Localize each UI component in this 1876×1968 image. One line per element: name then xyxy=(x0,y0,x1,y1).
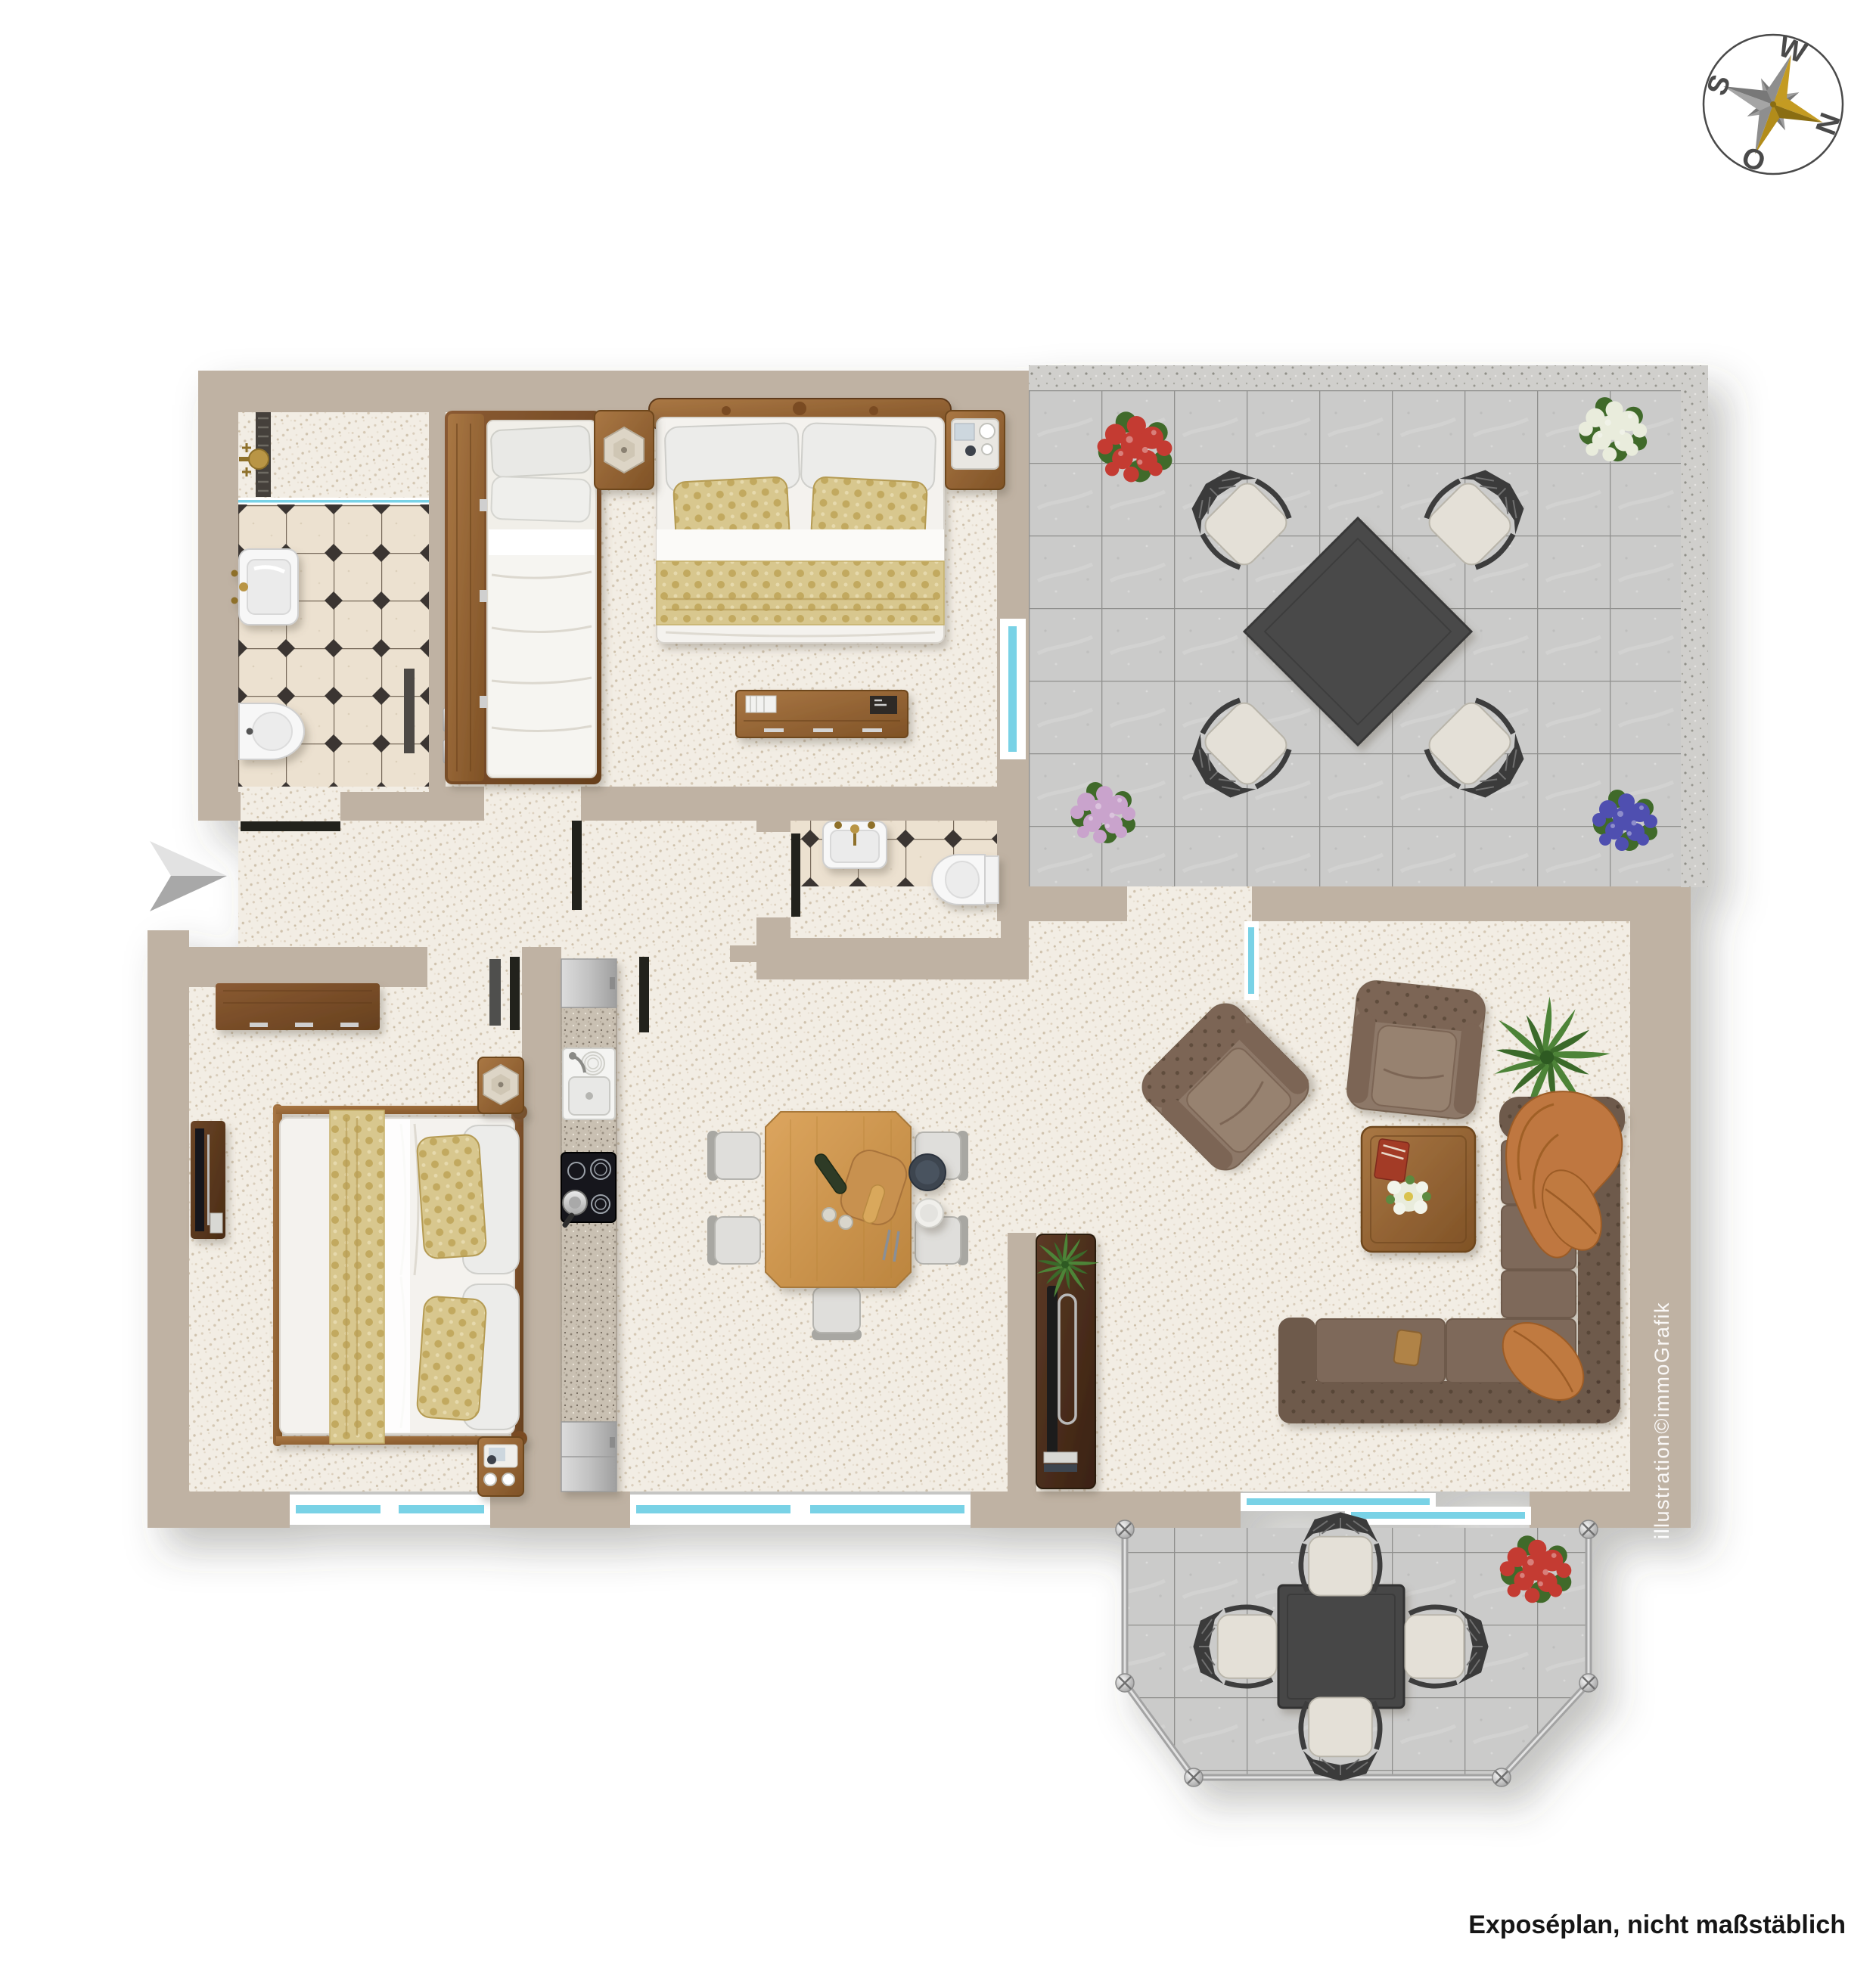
kitchen-counter xyxy=(561,959,617,1492)
apartment-floor-plan: illustration©immoGrafik xyxy=(148,365,1708,1786)
wc-toilet xyxy=(932,855,999,905)
armchair xyxy=(1346,979,1487,1121)
bathroom-door-leaf xyxy=(241,821,340,831)
desk xyxy=(216,983,380,1030)
watermark: illustration©immoGrafik xyxy=(1651,1302,1673,1539)
balcony-chair xyxy=(1405,1607,1488,1686)
dining-chair xyxy=(812,1287,862,1340)
terrace-parapet-right xyxy=(1681,365,1708,887)
tv-sideboard xyxy=(191,1121,225,1239)
bathroom-toilet xyxy=(239,703,304,759)
terrace-parapet-top xyxy=(1029,365,1708,390)
bedroom-bottom-door-leaf xyxy=(489,959,501,1026)
double-bed-bottom xyxy=(273,1104,527,1446)
glass xyxy=(822,1208,836,1221)
single-bed xyxy=(445,411,601,784)
glass xyxy=(839,1215,853,1229)
cooktop xyxy=(561,1153,616,1228)
coffee-table xyxy=(1362,1127,1475,1252)
double-bed xyxy=(649,399,951,643)
kitchen-door-leaf-left xyxy=(510,957,520,1030)
dresser-shelf xyxy=(736,691,908,737)
dining-chair xyxy=(707,1131,760,1181)
sideboard xyxy=(1036,1232,1099,1488)
compass-rose-icon: W N O S xyxy=(1701,31,1846,177)
kitchen xyxy=(561,959,617,1492)
nightstand-right xyxy=(946,411,1005,489)
bedroom-top-door-leaf xyxy=(572,821,582,910)
wc-door-leaf xyxy=(791,833,800,917)
bathroom-radiator xyxy=(404,669,415,753)
balcony-chair xyxy=(1301,1697,1380,1780)
balcony-sliding-door xyxy=(1241,1493,1531,1525)
kitchen-sink xyxy=(563,1048,615,1119)
balcony-chair xyxy=(1193,1607,1276,1686)
bathroom-sink xyxy=(231,549,299,625)
window-bedroom-terrace xyxy=(1000,619,1026,759)
tv xyxy=(195,1128,204,1231)
dining-chair xyxy=(707,1215,760,1265)
kitchen-cabinet-top xyxy=(561,959,617,1007)
window-kitchen-dining xyxy=(630,1495,971,1525)
balcony-chair xyxy=(1301,1512,1380,1595)
nightstand-left xyxy=(595,411,654,489)
leather-tag xyxy=(1393,1330,1422,1366)
wc-sink xyxy=(823,821,887,868)
nightstand-top xyxy=(478,1057,523,1113)
nightstand-bottom xyxy=(478,1437,523,1496)
terrace-door xyxy=(1244,921,1259,1000)
floor-plan-canvas: illustration©immoGrafik W N O S Exposépl… xyxy=(0,0,1876,1968)
disclaimer-text: Exposéplan, nicht maßstäblich xyxy=(1468,1911,1846,1939)
balcony-table xyxy=(1278,1585,1404,1708)
kitchen-door-leaf-right xyxy=(639,957,649,1032)
entrance-arrow-icon xyxy=(150,841,227,911)
window-bedroom-bottom xyxy=(290,1495,490,1525)
book xyxy=(1374,1138,1410,1181)
